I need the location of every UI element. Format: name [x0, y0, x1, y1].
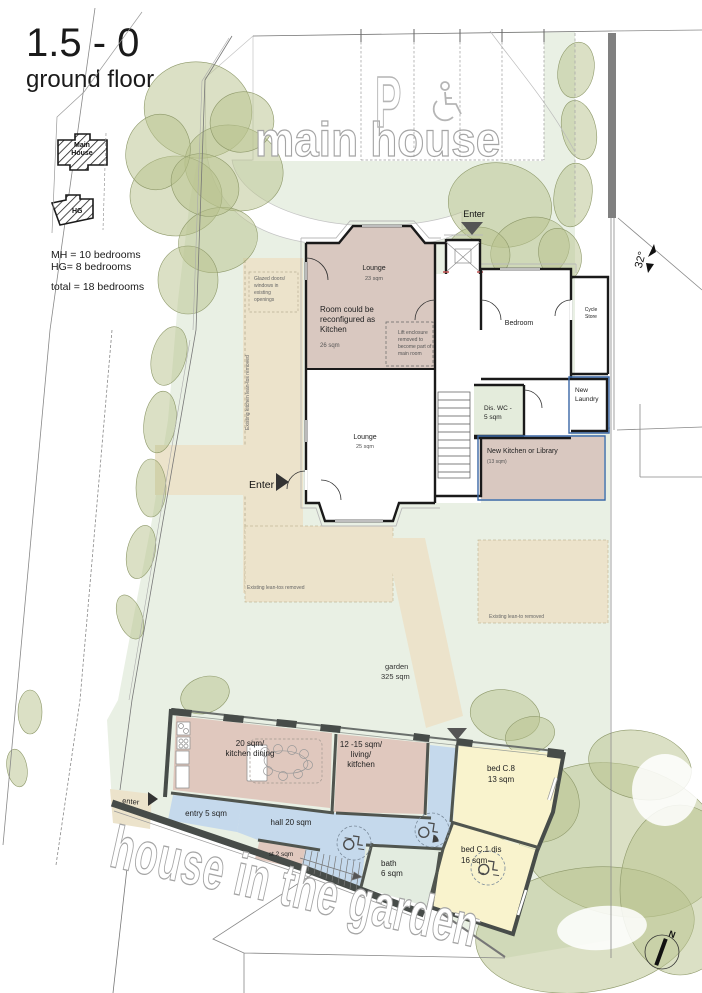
- svg-text:hall 20 sqm: hall 20 sqm: [271, 818, 312, 827]
- svg-text:Room could be: Room could be: [320, 305, 374, 314]
- svg-text:12 -15 sqm/: 12 -15 sqm/: [340, 740, 383, 749]
- svg-text:Existing lean-to removed: Existing lean-to removed: [489, 614, 544, 620]
- svg-text:5 sqm: 5 sqm: [484, 414, 502, 421]
- svg-text:Glazed doors/: Glazed doors/: [254, 276, 286, 282]
- svg-text:existing: existing: [254, 290, 271, 296]
- svg-text:HG= 8 bedrooms: HG= 8 bedrooms: [51, 261, 131, 273]
- svg-text:Existing lean-tos removed: Existing lean-tos removed: [247, 585, 305, 591]
- svg-text:325 sqm: 325 sqm: [381, 672, 410, 681]
- svg-text:New Kitchen or Library: New Kitchen or Library: [487, 448, 558, 455]
- svg-text:Lounge: Lounge: [362, 265, 385, 272]
- svg-text:Kitchen: Kitchen: [320, 325, 347, 334]
- svg-text:garden: garden: [385, 662, 408, 671]
- svg-text:ground floor: ground floor: [26, 66, 154, 93]
- svg-text:Lounge: Lounge: [353, 434, 376, 441]
- svg-text:1.5 - 0: 1.5 - 0: [26, 21, 139, 65]
- svg-text:New: New: [575, 387, 588, 394]
- svg-text:6 sqm: 6 sqm: [381, 869, 403, 878]
- svg-text:kitchen dining: kitchen dining: [226, 749, 275, 758]
- svg-text:25 sqm: 25 sqm: [356, 444, 374, 450]
- svg-text:26 sqm: 26 sqm: [320, 343, 340, 349]
- svg-text:Dis. WC -: Dis. WC -: [484, 405, 512, 412]
- svg-text:enter: enter: [122, 796, 140, 807]
- svg-text:living/: living/: [351, 750, 372, 759]
- svg-text:bed C.1 dis: bed C.1 dis: [461, 845, 501, 854]
- svg-text:P: P: [375, 63, 401, 144]
- svg-text:Bedroom: Bedroom: [505, 320, 534, 327]
- svg-text:Existing kitchen lean-tos re: Existing kitchen lean-tos removed: [245, 355, 251, 430]
- svg-text:reconfigured as: reconfigured as: [320, 315, 375, 324]
- svg-text:removed to: removed to: [398, 337, 423, 343]
- svg-text:Enter: Enter: [249, 479, 275, 491]
- svg-text:Cycle: Cycle: [585, 307, 598, 313]
- svg-text:16 sqm: 16 sqm: [461, 856, 488, 865]
- svg-text:bath: bath: [381, 859, 397, 868]
- svg-text:23 sqm: 23 sqm: [365, 276, 383, 282]
- svg-text:kitfchen: kitfchen: [347, 760, 375, 769]
- svg-text:become part of: become part of: [398, 344, 432, 350]
- svg-text:Lift enclosure: Lift enclosure: [398, 330, 428, 336]
- svg-text:total = 18 bedrooms: total = 18 bedrooms: [51, 281, 144, 293]
- svg-text:entry 5 sqm: entry 5 sqm: [185, 809, 227, 818]
- svg-text:Enter: Enter: [463, 209, 485, 219]
- svg-text:st 2 sqm: st 2 sqm: [269, 851, 294, 858]
- svg-text:HG: HG: [72, 208, 83, 215]
- svg-text:MH = 10 bedrooms: MH = 10 bedrooms: [51, 249, 141, 261]
- svg-text:main room: main room: [398, 351, 422, 357]
- svg-text:13 sqm: 13 sqm: [488, 775, 515, 784]
- svg-text:Laundry: Laundry: [575, 396, 599, 403]
- svg-text:Main: Main: [74, 142, 90, 149]
- svg-text:bed C.8: bed C.8: [487, 764, 516, 773]
- svg-text:House: House: [71, 150, 93, 157]
- svg-text:windows in: windows in: [254, 283, 279, 289]
- svg-text:32°: 32°: [633, 250, 649, 269]
- svg-text:Store: Store: [585, 314, 597, 320]
- svg-text:openings: openings: [254, 297, 275, 303]
- svg-text:20 sqm/: 20 sqm/: [236, 739, 265, 748]
- svg-text:(13 sqm): (13 sqm): [487, 459, 507, 465]
